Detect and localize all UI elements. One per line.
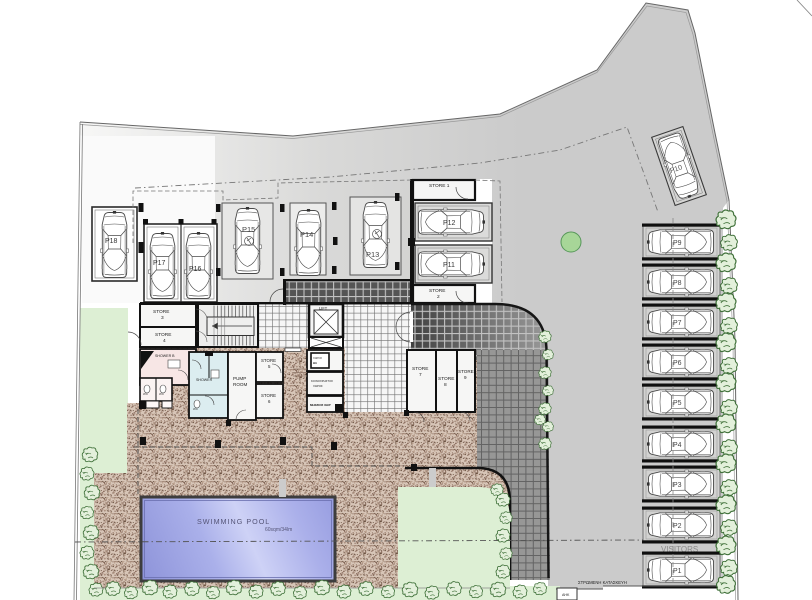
svg-text:P5: P5 [673,400,682,407]
svg-text:STORE: STORE [429,288,445,294]
svg-text:SHOWER: SHOWER [196,378,213,382]
svg-text:STORE: STORE [438,376,454,382]
svg-text:60sqm/34lm: 60sqm/34lm [265,527,292,533]
svg-text:P14: P14 [300,230,313,239]
svg-text:ΜΗΧ∕ΚΟΣ ΧΩΡ: ΜΗΧ∕ΚΟΣ ΧΩΡ [310,403,331,407]
svg-text:SHOWER B: SHOWER B [155,354,175,358]
svg-text:P11: P11 [443,262,455,269]
svg-text:SWIMMING POOL: SWIMMING POOL [197,517,270,526]
svg-text:P1: P1 [673,568,682,575]
svg-text:4: 4 [163,338,166,344]
svg-text:9: 9 [464,375,467,380]
svg-text:P17: P17 [153,260,166,267]
svg-text:P8: P8 [673,280,682,287]
svg-text:3: 3 [161,315,164,321]
svg-text:P16: P16 [189,266,202,273]
svg-text:P2: P2 [673,523,682,530]
svg-text:WC: WC [193,407,199,411]
svg-text:2: 2 [437,294,440,300]
svg-text:STORE: STORE [412,366,428,372]
svg-text:7: 7 [419,372,422,378]
svg-text:ΚΟΙΝΟΧΡΗΣΤΟΣ: ΚΟΙΝΟΧΡΗΣΤΟΣ [311,379,333,383]
svg-text:P6: P6 [673,360,682,367]
svg-text:ΗΛ: ΗΛ [313,361,317,365]
svg-text:P4: P4 [673,442,682,449]
svg-text:STORE: STORE [261,358,276,363]
svg-text:P18: P18 [105,238,118,245]
svg-text:ΧΩΡΟΣ: ΧΩΡΟΣ [313,384,323,388]
svg-text:P12: P12 [443,220,456,227]
svg-text:P15: P15 [242,225,255,234]
svg-text:P3: P3 [673,482,682,489]
svg-text:WC: WC [159,392,165,396]
svg-text:STORE: STORE [153,309,169,315]
svg-text:STORE 1: STORE 1 [429,183,450,189]
svg-text:ROOM: ROOM [233,382,247,387]
svg-text:WC: WC [143,392,149,396]
svg-text:STORE: STORE [261,393,276,398]
svg-text:STORE: STORE [458,369,474,374]
svg-text:P7: P7 [673,320,682,327]
svg-text:PUMP: PUMP [233,376,246,381]
svg-text:AHK: AHK [562,593,570,597]
svg-text:ΣΤΡΩΜΕΝΗ ΚΑΤΑΣΚΕΥΗ: ΣΤΡΩΜΕΝΗ ΚΑΤΑΣΚΕΥΗ [578,580,627,585]
svg-text:LIFT: LIFT [319,306,328,311]
svg-text:ΧΩΡΟΣ: ΧΩΡΟΣ [313,356,322,360]
svg-text:STORE: STORE [155,332,171,338]
svg-text:8: 8 [444,382,447,388]
svg-text:P13: P13 [366,250,379,259]
svg-text:P9: P9 [673,240,682,247]
